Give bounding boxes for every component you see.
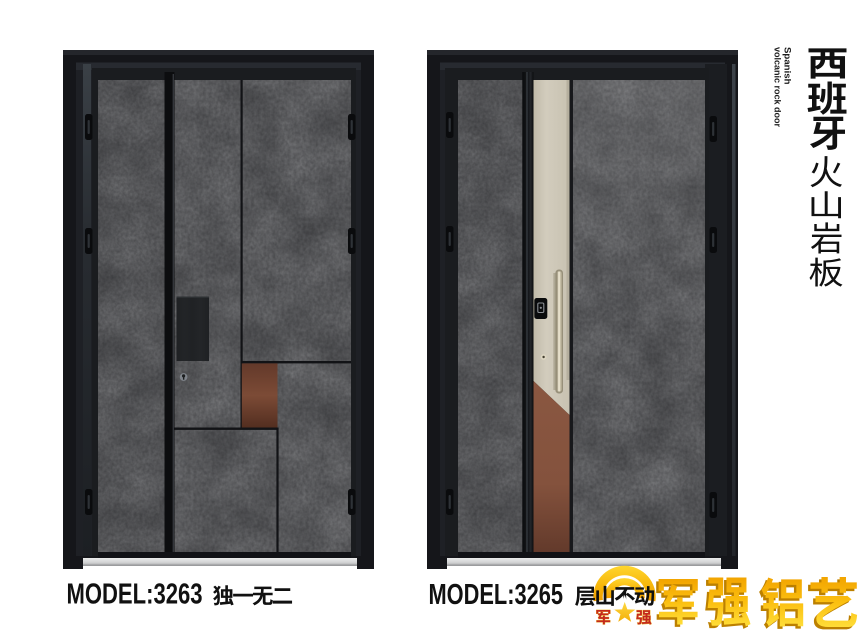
svg-text:Spanish: Spanish [783, 47, 793, 85]
svg-text:MODEL:3265: MODEL:3265 [429, 579, 564, 611]
svg-text:MODEL:3263: MODEL:3263 [67, 579, 203, 611]
svg-text:volcanic rock door: volcanic rock door [773, 47, 783, 128]
